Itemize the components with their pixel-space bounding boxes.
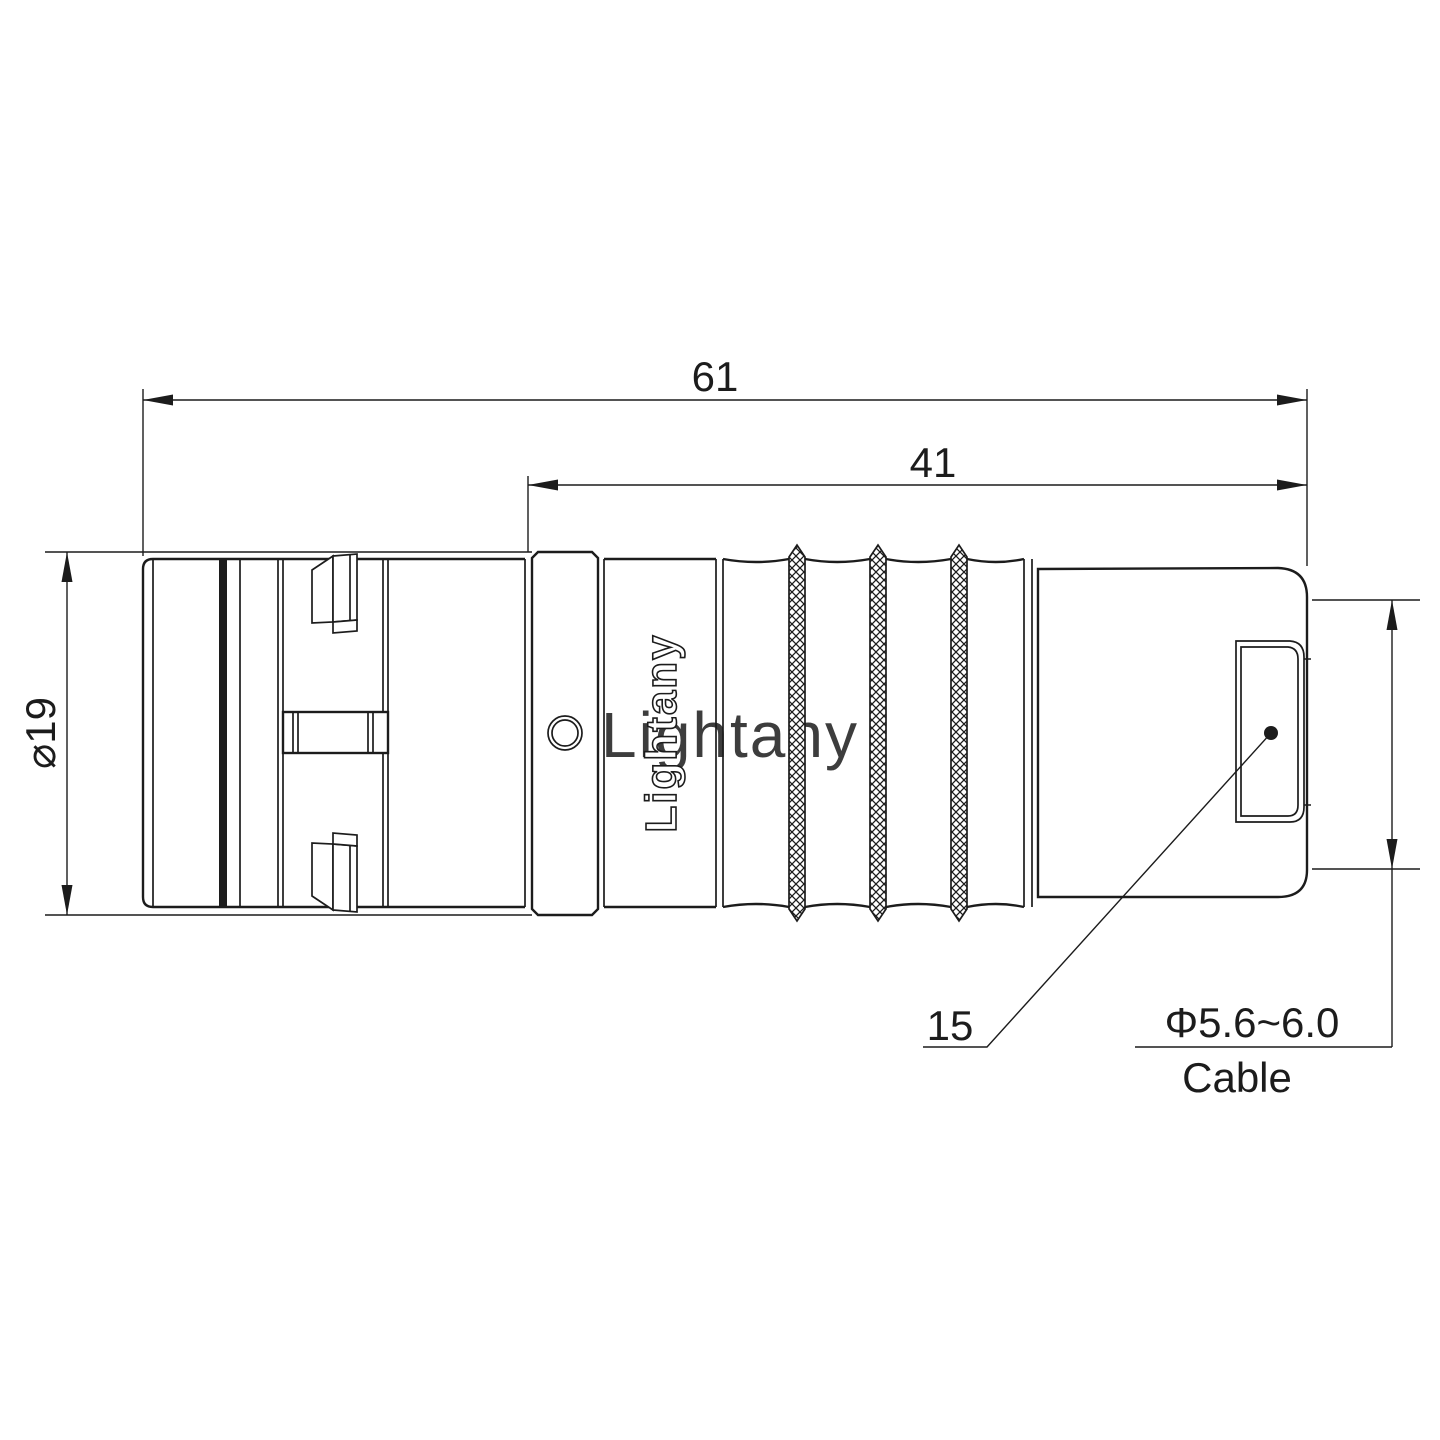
knurl-ring-3 (951, 545, 967, 921)
latch-flap-bottom (312, 833, 357, 912)
connector-technical-drawing-page: Lightany (0, 0, 1440, 1440)
arrowhead-left-icon (143, 395, 173, 406)
brand-text-vertical: Lightany (637, 633, 686, 832)
dimension-rear-length: 41 (528, 439, 1307, 552)
cable-word-label: Cable (1182, 1054, 1292, 1101)
knurl-ring-1 (789, 545, 805, 921)
front-shell-band (219, 560, 227, 906)
dimension-overall-length: 61 (143, 353, 1307, 566)
latch-slot (283, 712, 388, 753)
latch-flap-top (312, 554, 357, 633)
arrowhead-up-icon (1387, 600, 1398, 630)
dim-41-label: 41 (910, 439, 957, 486)
arrowhead-right-icon (1277, 395, 1307, 406)
dim-dia19-label: ⌀19 (17, 697, 64, 769)
cable-diameter-label: Φ5.6~6.0 (1165, 999, 1340, 1046)
collar-hole (548, 716, 582, 750)
collar (532, 552, 604, 915)
arrowhead-down-icon (1387, 839, 1398, 869)
leader-15-label: 15 (927, 1002, 974, 1049)
knurl-ring-2 (870, 545, 886, 921)
cable-boot (1038, 568, 1311, 897)
dimension-diameter: ⌀19 (17, 552, 532, 915)
arrowhead-up-icon (62, 552, 73, 582)
arrowhead-left-icon (528, 480, 558, 491)
dim-61-label: 61 (692, 353, 739, 400)
connector-technical-drawing: Lightany (0, 0, 1440, 1440)
arrowhead-down-icon (62, 885, 73, 915)
arrowhead-right-icon (1277, 480, 1307, 491)
